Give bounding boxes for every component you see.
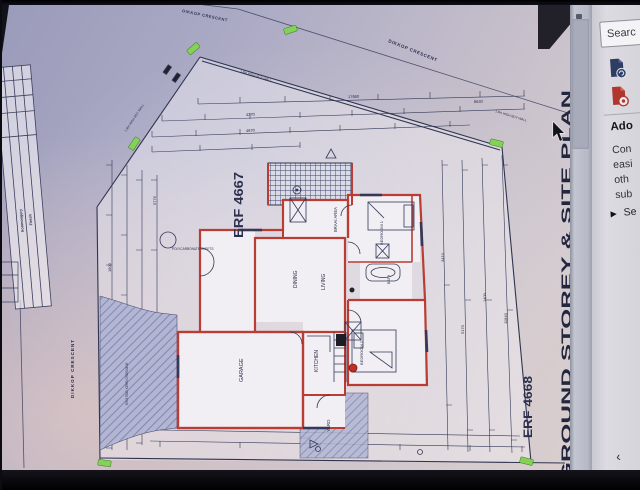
scrollbar-thumb[interactable] <box>572 19 589 149</box>
sidebar-divider <box>604 110 640 115</box>
arrow-right-icon: ▶ <box>610 209 617 218</box>
svg-text:BEDROOM 1: BEDROOM 1 <box>379 220 384 245</box>
monitor-photo: 17660 8640 4670 4270 3400 2600 1800 5170… <box>0 0 640 490</box>
search-label: Searc <box>607 26 637 40</box>
vertical-scrollbar[interactable] <box>570 5 592 470</box>
svg-text:1400: 1400 <box>482 292 487 302</box>
svg-text:LIVING: LIVING <box>321 273 327 290</box>
svg-text:5170: 5170 <box>460 324 465 334</box>
erf-main-label: ERF 4667 <box>231 172 246 238</box>
monitor-bezel-bottom <box>0 470 640 490</box>
svg-text:8640: 8640 <box>474 99 484 104</box>
svg-text:BRAAI AREA: BRAAI AREA <box>333 207 338 232</box>
svg-text:1800: 1800 <box>107 262 112 272</box>
monitor-bezel-left <box>0 0 2 490</box>
patio-grid <box>268 163 352 205</box>
street-name-top-edge: DIKKOP CRESCENT <box>182 8 229 23</box>
title-block: Ironmongery Finish <box>0 65 51 309</box>
svg-text:BATH: BATH <box>387 274 391 284</box>
geyser <box>349 364 357 372</box>
svg-text:KITCHEN: KITCHEN <box>314 350 320 372</box>
svg-text:5776: 5776 <box>152 195 157 205</box>
svg-text:11840: 11840 <box>503 312 508 324</box>
svg-text:BEDROOM 2: BEDROOM 2 <box>359 340 364 365</box>
driveway-hatch <box>100 296 177 450</box>
panel-text-line: oth <box>614 170 640 186</box>
panel-link[interactable]: ▶Se <box>610 206 637 220</box>
svg-text:DINING: DINING <box>293 270 299 288</box>
export-pdf-icon[interactable] <box>606 57 628 79</box>
svg-text:1.8m HIGH BDY WALL: 1.8m HIGH BDY WALL <box>124 103 146 133</box>
svg-text:4270: 4270 <box>246 112 256 117</box>
tools-sidebar: Searc <box>592 5 640 470</box>
svg-text:EXISTING KERB CROSSING: EXISTING KERB CROSSING <box>125 362 129 405</box>
site-plan-drawing[interactable]: 17660 8640 4670 4270 3400 2600 1800 5170… <box>0 5 575 470</box>
monitor-bezel-top <box>0 0 640 5</box>
street-name-left: DIKKOP CRESCENT <box>70 340 75 398</box>
panel-heading: Ado <box>610 120 633 134</box>
create-pdf-icon[interactable] <box>608 85 630 107</box>
svg-text:17660: 17660 <box>348 94 360 99</box>
svg-text:GARAGE: GARAGE <box>239 358 245 382</box>
svg-text:3410: 3410 <box>440 252 445 262</box>
pdf-viewer-screen: 17660 8640 4670 4270 3400 2600 1800 5170… <box>0 5 640 470</box>
search-input[interactable]: Searc <box>599 17 640 48</box>
panel-text-line: sub <box>615 185 640 201</box>
tools-sidebar-content: Searc <box>596 5 640 464</box>
mouse-cursor-icon <box>551 121 567 148</box>
panel-text-line: Con <box>612 140 640 156</box>
svg-text:POLYCARBONATE SHEETS: POLYCARBONATE SHEETS <box>172 247 214 251</box>
erf-adjacent-label: ERF 4668 <box>523 375 535 438</box>
svg-text:4670: 4670 <box>246 128 256 133</box>
svg-text:YARD: YARD <box>326 419 331 432</box>
svg-text:1.8m HIGH BDY WALL: 1.8m HIGH BDY WALL <box>495 109 528 122</box>
panel-text-line: easi <box>613 155 640 171</box>
